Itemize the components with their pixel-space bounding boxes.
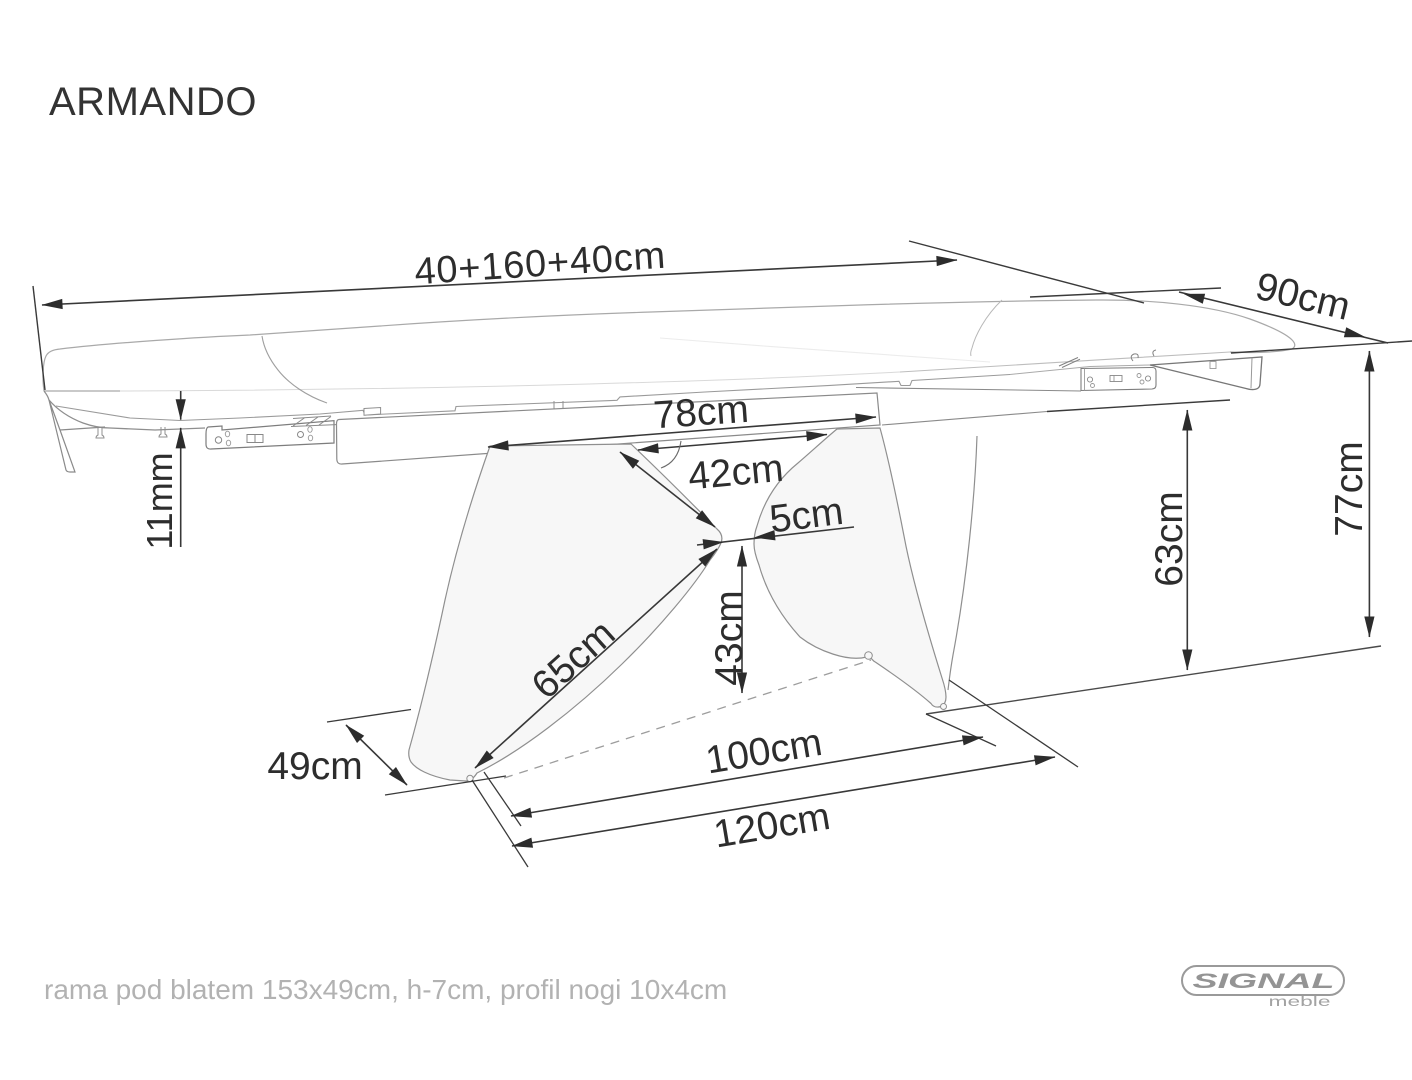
svg-text:11mm: 11mm: [139, 452, 180, 549]
svg-text:5cm: 5cm: [767, 490, 845, 542]
svg-text:meble: meble: [1269, 994, 1331, 1009]
svg-text:100cm: 100cm: [703, 721, 826, 783]
svg-text:77cm: 77cm: [1328, 441, 1371, 536]
svg-text:90cm: 90cm: [1252, 265, 1355, 329]
svg-text:63cm: 63cm: [1148, 491, 1191, 586]
svg-text:42cm: 42cm: [686, 447, 785, 499]
svg-text:40+160+40cm: 40+160+40cm: [413, 235, 667, 294]
svg-text:ARMANDO: ARMANDO: [49, 80, 257, 124]
svg-text:43cm: 43cm: [708, 590, 751, 685]
svg-text:rama pod blatem 153x49cm, h-7c: rama pod blatem 153x49cm, h-7cm, profil …: [44, 974, 727, 1005]
svg-text:SIGNAL: SIGNAL: [1193, 969, 1335, 993]
svg-text:120cm: 120cm: [711, 795, 834, 857]
svg-text:78cm: 78cm: [652, 388, 750, 438]
svg-text:49cm: 49cm: [267, 745, 362, 788]
